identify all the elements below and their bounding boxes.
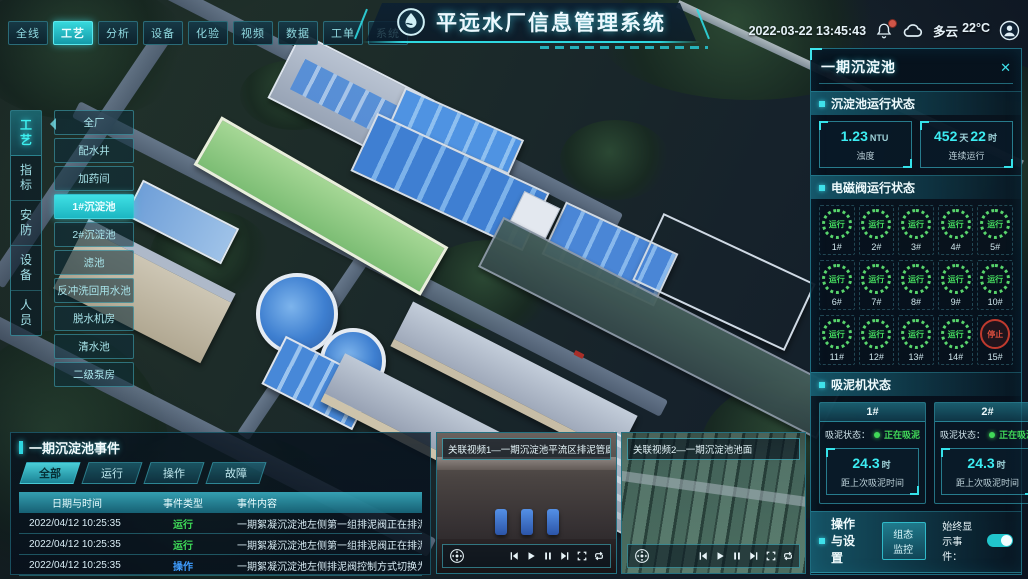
uptime-hours-unit: 时 <box>988 133 997 143</box>
mud-status-value: 正在吸泥 <box>884 428 920 441</box>
valve-status-cell[interactable]: 运行10# <box>977 260 1013 310</box>
uptime-days: 452 <box>934 128 957 144</box>
valve-status-ring: 运行 <box>822 209 852 239</box>
valve-status-cell[interactable]: 运行2# <box>859 205 895 255</box>
app-title-bar: 平远水厂信息管理系统 <box>366 3 696 41</box>
fullscreen-button[interactable] <box>577 551 587 561</box>
valve-id: 11# <box>820 352 854 362</box>
valve-id: 4# <box>939 242 973 252</box>
map-trees <box>0 0 190 120</box>
operations-title: 操作与设置 <box>831 515 864 566</box>
menu-item[interactable]: 清水池 <box>54 334 134 359</box>
valve-id: 10# <box>978 297 1012 307</box>
mud-machine-card: 1# 吸泥状态： 正在吸泥 24.3时 距上次吸泥时间 <box>819 402 926 504</box>
ptz-dpad-control[interactable] <box>634 548 650 564</box>
turbidity-stat: 1.23NTU 浊度 <box>819 121 912 168</box>
section-header: 沉淀池运行状态 <box>811 91 1021 115</box>
title-underline <box>362 41 700 43</box>
events-tab-run[interactable]: 运行 <box>81 462 142 484</box>
sidebar-tab-indicators[interactable]: 指标 <box>11 156 41 201</box>
ptz-dpad-control[interactable] <box>449 548 465 564</box>
uptime-label: 连续运行 <box>923 149 1010 162</box>
menu-item-selected[interactable]: 1#沉淀池 <box>54 194 134 219</box>
fullscreen-button[interactable] <box>766 551 776 561</box>
menu-item[interactable]: 全厂 <box>54 110 134 135</box>
valve-id: 1# <box>820 242 854 252</box>
toggle-knob <box>1001 535 1012 546</box>
valve-id: 3# <box>899 242 933 252</box>
mud-time-label: 距上次吸泥时间 <box>829 476 916 489</box>
play-button[interactable] <box>526 551 536 561</box>
pause-button[interactable] <box>543 551 553 561</box>
valve-status-cell[interactable]: 运行12# <box>859 315 895 365</box>
video-controls <box>627 544 800 568</box>
valve-status-cell[interactable]: 停止15# <box>977 315 1013 365</box>
next-button[interactable] <box>560 551 570 561</box>
valve-id: 7# <box>860 297 894 307</box>
valve-status-cell[interactable]: 运行14# <box>938 315 974 365</box>
nav-tab[interactable]: 化验 <box>188 21 228 45</box>
mud-time-value: 24.3 <box>967 455 994 471</box>
notification-badge <box>888 19 897 28</box>
section-header: 吸泥机状态 <box>811 372 1021 396</box>
nav-tab[interactable]: 设备 <box>143 21 183 45</box>
datetime-label: 2022-03-22 13:45:43 <box>749 24 866 38</box>
valve-status-cell[interactable]: 运行6# <box>819 260 855 310</box>
main-nav: 全线 工艺 分析 设备 化验 视频 数据 工单 系统 <box>8 21 408 45</box>
weather-temperature: 22°C <box>962 21 990 40</box>
table-row[interactable]: 2022/04/12 10:25:35 运行 一期絮凝沉淀池左侧第一组排泥阀正在… <box>19 513 422 534</box>
weather-condition: 多云 <box>933 21 958 40</box>
running-status-stats: 1.23NTU 浊度 452天22时 连续运行 <box>819 121 1013 168</box>
mud-time-stat: 24.3时 距上次吸泥时间 <box>826 448 919 495</box>
event-content: 一期絮凝沉淀池左侧第一组排泥阀正在排泥 <box>231 516 422 531</box>
valve-status-ring: 运行 <box>822 264 852 294</box>
pause-button[interactable] <box>732 551 742 561</box>
valve-id: 12# <box>860 352 894 362</box>
column-header: 日期与时间 <box>19 495 135 510</box>
column-header: 事件内容 <box>231 495 422 510</box>
menu-item[interactable]: 配水井 <box>54 138 134 163</box>
status-dot-icon <box>874 432 880 438</box>
loop-button[interactable] <box>594 551 604 561</box>
detail-panel-header: 一期沉淀池 ✕ <box>819 55 1013 84</box>
mud-time-stat: 24.3时 距上次吸泥时间 <box>941 448 1028 495</box>
nav-tab[interactable]: 全线 <box>8 21 48 45</box>
valve-status-cell[interactable]: 运行13# <box>898 315 934 365</box>
events-tab-fault[interactable]: 故障 <box>205 462 266 484</box>
map-trees <box>560 120 670 200</box>
valve-status-ring-stopped: 停止 <box>980 319 1010 349</box>
video-controls <box>442 544 611 568</box>
uptime-days-unit: 天 <box>959 133 968 143</box>
valve-status-ring: 运行 <box>861 319 891 349</box>
valve-status-ring: 运行 <box>822 319 852 349</box>
app-root: 全线 工艺 分析 设备 化验 视频 数据 工单 系统 平远水厂信息管理系统 20… <box>0 0 1028 579</box>
mud-machine-card: 2# 吸泥状态： 正在吸泥 24.3时 距上次吸泥时间 <box>934 402 1028 504</box>
weather-label: 多云 22°C <box>933 21 990 40</box>
event-type: 操作 <box>173 562 193 573</box>
uptime-hours: 22 <box>970 128 986 144</box>
valve-status-ring: 运行 <box>901 264 931 294</box>
sidebar-tab-personnel[interactable]: 人员 <box>11 291 41 335</box>
mud-machine-id: 1# <box>820 403 925 422</box>
event-content: 一期絮凝沉淀池左侧第一组排泥阀正在排泥 <box>231 537 422 552</box>
valve-id: 15# <box>978 352 1012 362</box>
valve-status-ring: 运行 <box>941 319 971 349</box>
video-title: 关联视频1—一期沉淀池平流区排泥管廊 <box>442 438 611 460</box>
video-panel-1: 关联视频1—一期沉淀池平流区排泥管廊 <box>436 432 617 574</box>
prev-button[interactable] <box>509 551 519 561</box>
sidebar-tab-security[interactable]: 安防 <box>11 201 41 246</box>
mud-time-unit: 时 <box>997 460 1006 470</box>
events-table-body: 2022/04/12 10:25:35 运行 一期絮凝沉淀池左侧第一组排泥阀正在… <box>19 513 422 579</box>
section-header: 电磁阀运行状态 <box>811 175 1021 199</box>
table-row[interactable]: 2022/04/12 10:25:35 运行 一期絮凝沉淀池左侧第一组排泥阀正在… <box>19 534 422 555</box>
mud-machine-status-row: 吸泥状态： 正在吸泥 <box>820 422 925 443</box>
mud-time-label: 距上次吸泥时间 <box>944 476 1028 489</box>
nav-tab[interactable]: 数据 <box>278 21 318 45</box>
valve-id: 2# <box>860 242 894 252</box>
valve-status-cell[interactable]: 运行8# <box>898 260 934 310</box>
operations-section: 操作与设置 组态监控 始终显示事件： <box>811 511 1021 573</box>
events-table-header: 日期与时间 事件类型 事件内容 <box>19 492 422 513</box>
menu-item[interactable]: 滤池 <box>54 250 134 275</box>
page-title: 平远水厂信息管理系统 <box>436 7 666 37</box>
table-row[interactable]: 2022/04/12 10:25:35 操作 一期絮凝沉淀池左侧排泥阀控制方式切… <box>19 555 422 576</box>
nav-tab[interactable]: 视频 <box>233 21 273 45</box>
weather-cloud-icon <box>902 23 924 38</box>
header-right: 2022-03-22 13:45:43 多云 22°C <box>749 20 1020 41</box>
event-datetime: 2022/04/12 10:25:35 <box>19 560 135 571</box>
mud-machine-status-row: 吸泥状态： 正在吸泥 <box>935 422 1028 443</box>
loop-button[interactable] <box>783 551 793 561</box>
always-show-events-toggle[interactable] <box>987 534 1013 547</box>
valve-status-ring: 运行 <box>980 264 1010 294</box>
menu-item[interactable]: 二级泵房 <box>54 362 134 387</box>
events-panel-title: 一期沉淀池事件 <box>11 433 430 460</box>
notifications-bell-icon[interactable] <box>875 22 893 40</box>
column-header: 事件类型 <box>135 495 231 510</box>
mud-status-label: 吸泥状态： <box>940 428 985 441</box>
valve-grid: 运行1# 运行2# 运行3# 运行4# 运行5# 运行6# 运行7# 运行8# … <box>819 205 1013 365</box>
valve-status-cell[interactable]: 运行4# <box>938 205 974 255</box>
valve-status-cell[interactable]: 运行1# <box>819 205 855 255</box>
menu-item[interactable]: 脱水机房 <box>54 306 134 331</box>
nav-tab[interactable]: 工艺 <box>53 21 93 45</box>
valve-status-ring: 运行 <box>901 209 931 239</box>
valve-status-ring: 运行 <box>861 209 891 239</box>
event-datetime: 2022/04/12 10:25:35 <box>19 518 135 529</box>
valve-status-ring: 运行 <box>901 319 931 349</box>
turbidity-unit: NTU <box>870 133 889 143</box>
video-panel-2: 关联视频2—一期沉淀池池面 <box>621 432 806 574</box>
valve-status-ring: 运行 <box>941 264 971 294</box>
events-tab-operate[interactable]: 操作 <box>143 462 204 484</box>
mud-machine-id: 2# <box>935 403 1028 422</box>
valve-id: 9# <box>939 297 973 307</box>
valve-status-ring: 运行 <box>980 209 1010 239</box>
event-datetime: 2022/04/12 10:25:35 <box>19 539 135 550</box>
events-tab-all[interactable]: 全部 <box>19 462 80 484</box>
scada-monitor-button[interactable]: 组态监控 <box>882 522 926 560</box>
event-type: 运行 <box>173 541 193 552</box>
valve-status-ring: 运行 <box>941 209 971 239</box>
left-sidebar: 工艺 指标 安防 设备 人员 <box>10 110 42 336</box>
valve-status-cell[interactable]: 运行7# <box>859 260 895 310</box>
menu-item[interactable]: 2#沉淀池 <box>54 222 134 247</box>
mud-status-value: 正在吸泥 <box>999 428 1028 441</box>
detail-panel: 一期沉淀池 ✕ 沉淀池运行状态 1.23NTU 浊度 452天22时 连续运行 … <box>810 48 1022 575</box>
mud-status-label: 吸泥状态： <box>825 428 870 441</box>
next-button[interactable] <box>749 551 759 561</box>
mud-time-unit: 时 <box>882 460 891 470</box>
menu-item[interactable]: 加药间 <box>54 166 134 191</box>
detail-panel-title: 一期沉淀池 <box>821 57 896 77</box>
always-show-events-label: 始终显示事件： <box>942 518 981 563</box>
valve-status-cell[interactable]: 运行11# <box>819 315 855 365</box>
turbidity-label: 浊度 <box>822 149 909 162</box>
valve-status-cell[interactable]: 运行5# <box>977 205 1013 255</box>
prev-button[interactable] <box>698 551 708 561</box>
event-type: 运行 <box>173 520 193 531</box>
video-scene-pump <box>495 509 507 535</box>
close-icon[interactable]: ✕ <box>1000 61 1011 74</box>
status-dot-icon <box>989 432 995 438</box>
valve-id: 6# <box>820 297 854 307</box>
nav-tab[interactable]: 分析 <box>98 21 138 45</box>
process-menu: 全厂 配水井 加药间 1#沉淀池 2#沉淀池 滤池 反冲洗回用水池 脱水机房 清… <box>54 110 134 387</box>
mud-time-value: 24.3 <box>852 455 879 471</box>
user-avatar[interactable] <box>999 20 1020 41</box>
sidebar-tab-process[interactable]: 工艺 <box>11 111 41 156</box>
turbidity-value: 1.23 <box>841 128 868 144</box>
menu-item[interactable]: 反冲洗回用水池 <box>54 278 134 303</box>
events-panel: 一期沉淀池事件 全部 运行 操作 故障 日期与时间 事件类型 事件内容 2022… <box>10 432 431 575</box>
events-filter-tabs: 全部 运行 操作 故障 <box>11 460 430 490</box>
valve-status-ring: 运行 <box>861 264 891 294</box>
sidebar-tab-equipment[interactable]: 设备 <box>11 246 41 291</box>
video-title: 关联视频2—一期沉淀池池面 <box>627 438 800 460</box>
video-scene-pump <box>547 509 559 535</box>
valve-status-cell[interactable]: 运行3# <box>898 205 934 255</box>
mud-machine-cards: 1# 吸泥状态： 正在吸泥 24.3时 距上次吸泥时间 2# 吸泥状态： 正在吸… <box>819 402 1013 504</box>
valve-id: 8# <box>899 297 933 307</box>
title-decor-dashes <box>540 46 708 49</box>
uptime-stat: 452天22时 连续运行 <box>920 121 1013 168</box>
valve-id: 5# <box>978 242 1012 252</box>
valve-id: 13# <box>899 352 933 362</box>
valve-status-cell[interactable]: 运行9# <box>938 260 974 310</box>
water-drop-logo-icon <box>396 7 426 37</box>
play-button[interactable] <box>715 551 725 561</box>
valve-id: 14# <box>939 352 973 362</box>
video-scene-pump <box>521 509 533 535</box>
event-content: 一期絮凝沉淀池左侧排泥阀控制方式切换为手动 <box>231 558 422 573</box>
